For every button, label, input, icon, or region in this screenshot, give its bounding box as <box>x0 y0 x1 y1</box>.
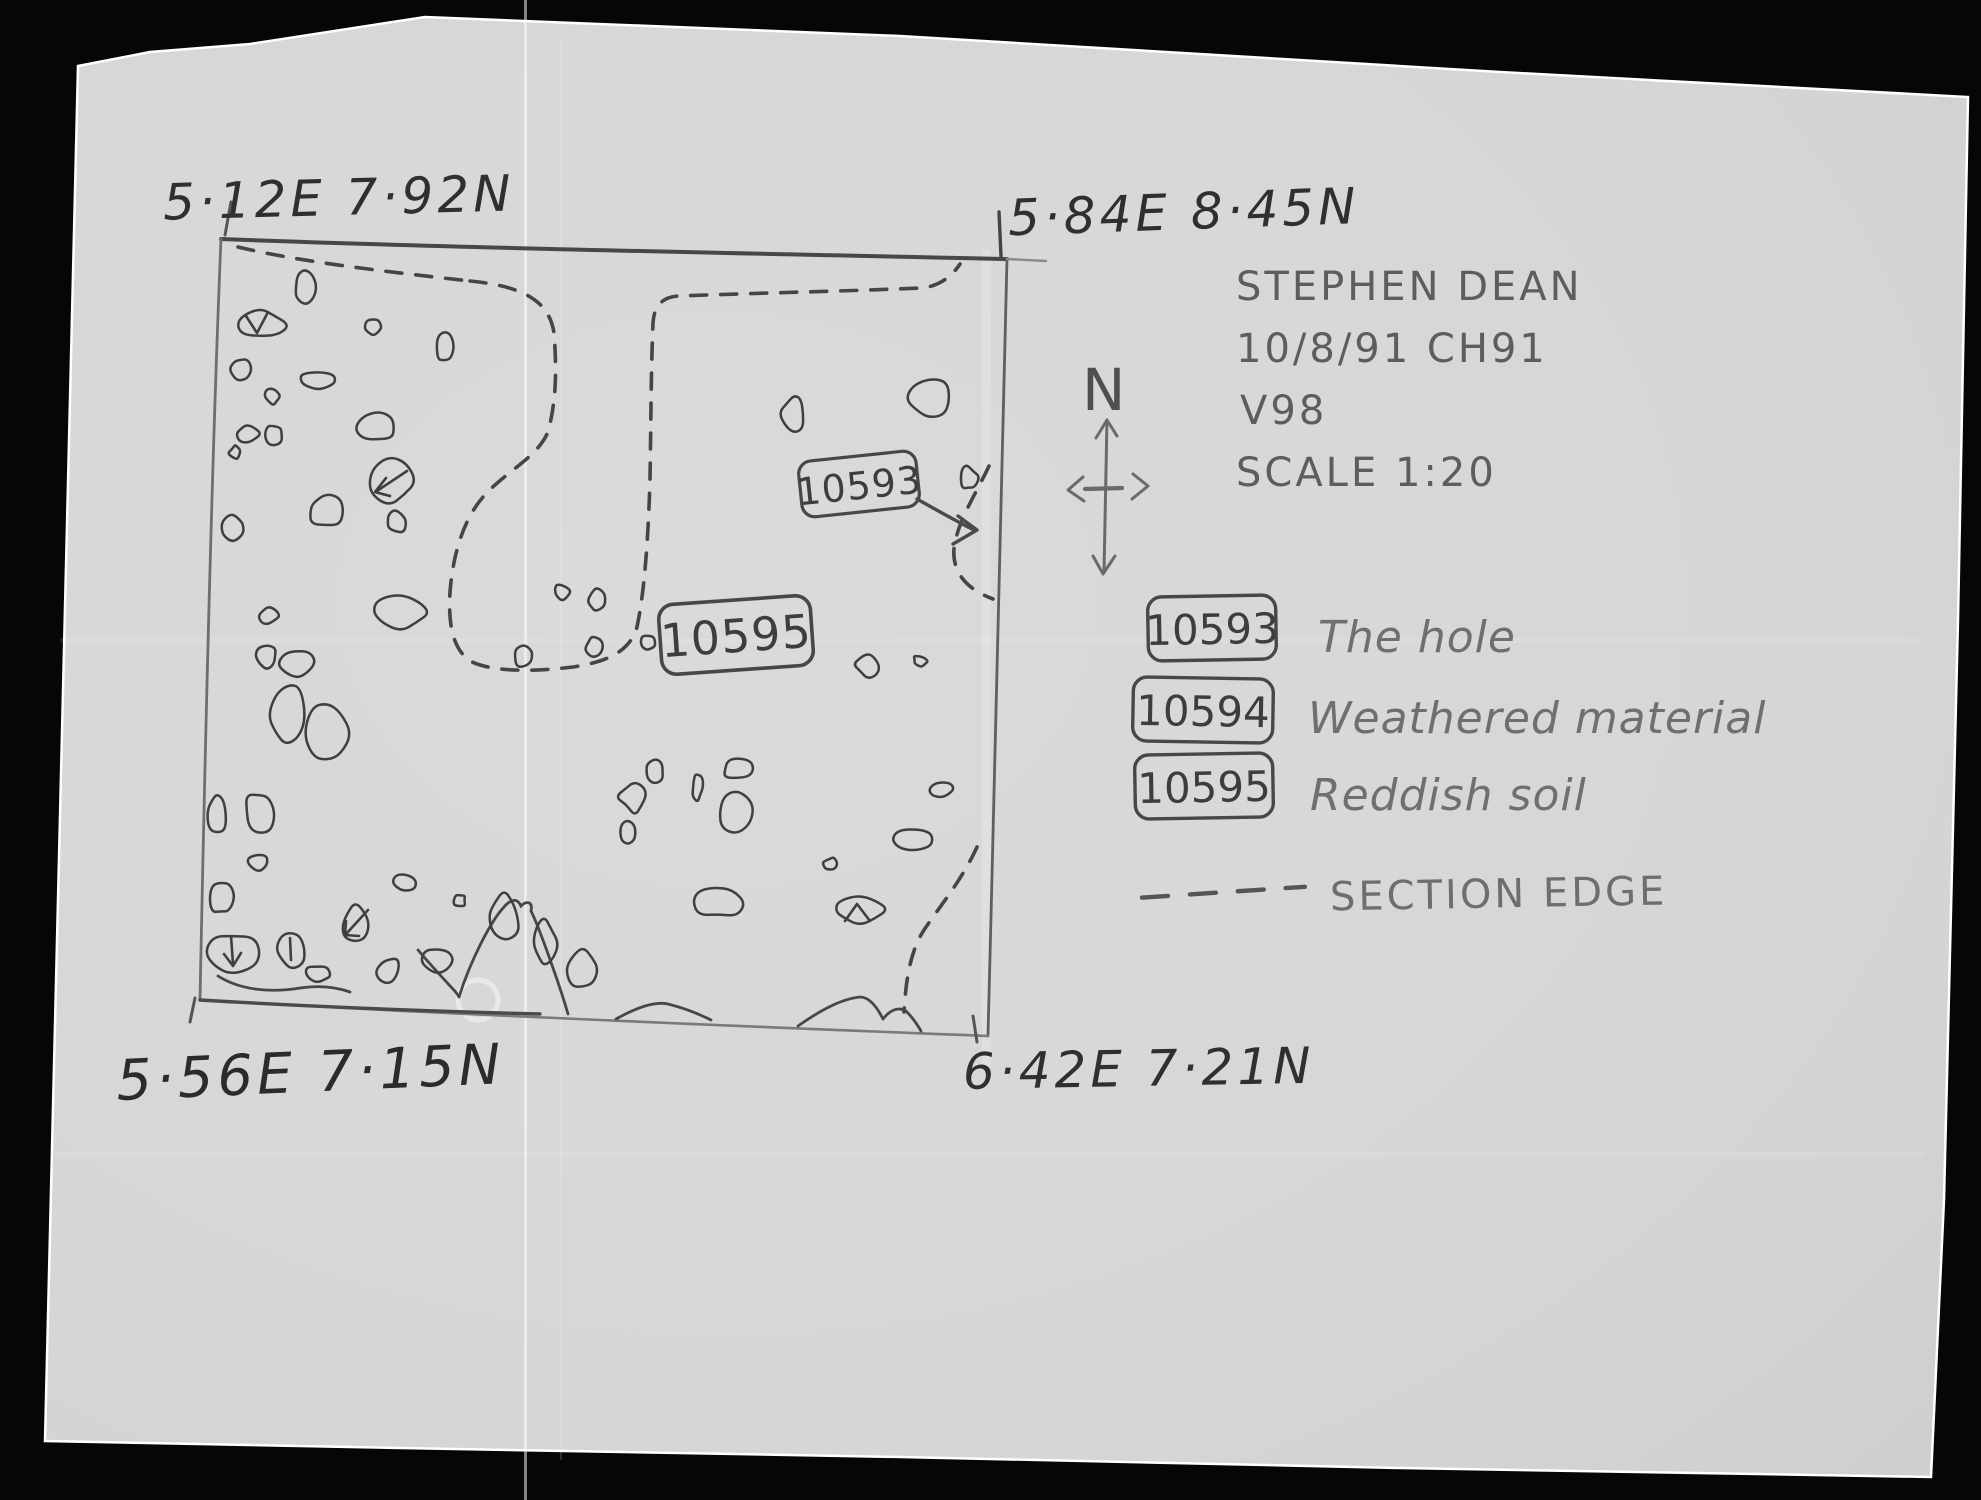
legend-number-10593: 10593 <box>1145 604 1279 655</box>
plan-label-10595-text: 10595 <box>659 604 814 668</box>
slope-tick <box>290 938 291 960</box>
coord-top-right: 5·84E 8·45N <box>1007 177 1360 247</box>
coord-top-left: 5·12E 7·92N <box>162 164 515 231</box>
coord-bottom-right: 6·42E 7·21N <box>963 1037 1316 1101</box>
paper-sheet <box>45 17 1968 1477</box>
scanned-field-drawing: 10593 10595 5·12E 7·92N 5·84E 8·45N 5·56… <box>0 0 1981 1500</box>
date-and-site: 10/8/91 CH91 <box>1236 326 1548 372</box>
legend-desc-10593: The hole <box>1318 612 1516 663</box>
section-edge-label: SECTION EDGE <box>1330 868 1668 920</box>
legend-number-10594: 10594 <box>1136 686 1270 737</box>
legend-number-10595: 10595 <box>1137 762 1271 813</box>
scale-note: SCALE 1:20 <box>1236 450 1497 496</box>
corner-tick-top-right <box>999 212 1001 256</box>
north-label: N <box>1082 356 1125 424</box>
recorder-name: STEPHEN DEAN <box>1236 264 1583 310</box>
legend-desc-10595: Reddish soil <box>1310 770 1587 821</box>
trench-code: V98 <box>1240 388 1327 434</box>
legend-desc-10594: Weathered material <box>1308 693 1766 744</box>
scan-canvas: 10593 10595 5·12E 7·92N 5·84E 8·45N 5·56… <box>0 0 1981 1500</box>
